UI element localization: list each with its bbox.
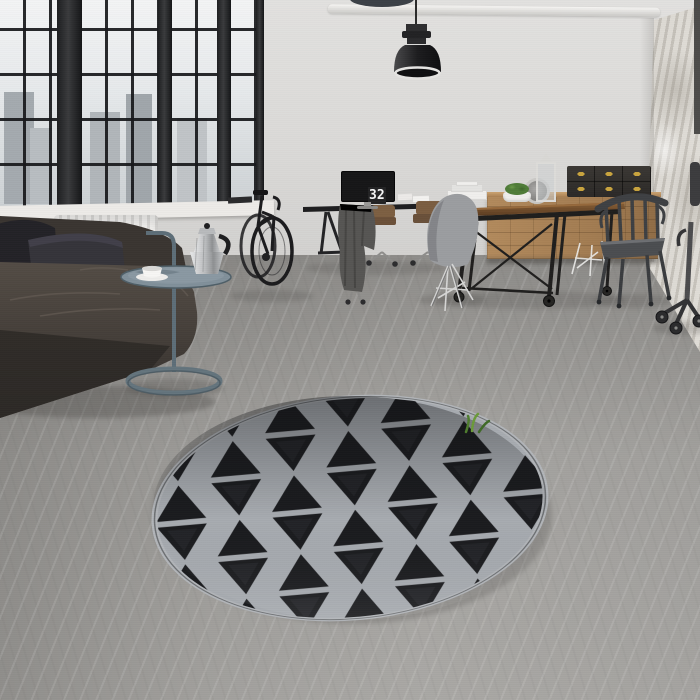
draped-cloth [338,204,376,305]
round-rug [145,381,555,636]
scene-drawing [0,0,700,700]
loft-room-photo: 1132 [0,0,700,700]
flip-clock-monitor: 1132 [341,171,395,202]
pendant-lamp [394,0,441,79]
clock-minutes: 32 [368,187,386,204]
bicycle [228,190,292,284]
moka-pot [190,223,228,274]
monitor-base [357,206,378,209]
